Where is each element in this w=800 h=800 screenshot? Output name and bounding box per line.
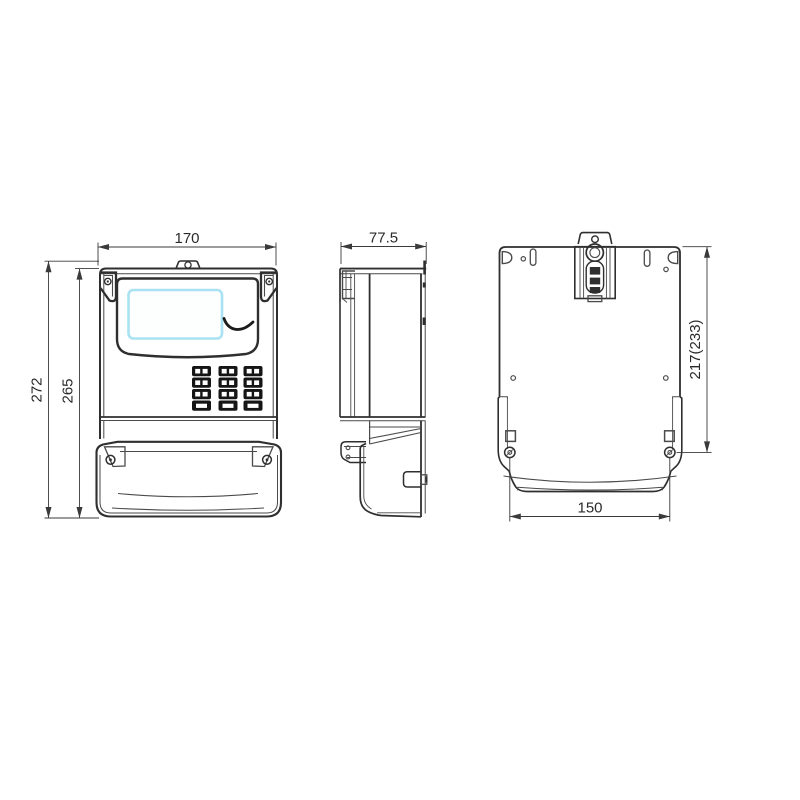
- side-view: [340, 261, 427, 518]
- small-hole: [664, 267, 668, 271]
- front-corner-screw-left: [101, 273, 117, 302]
- lcd-screen: [129, 290, 223, 339]
- dimension-label-side-depth: 77.5: [369, 230, 398, 247]
- back-cover-hooks: [498, 397, 682, 492]
- back-view: [498, 233, 682, 492]
- keypad-button: [219, 378, 238, 388]
- front-terminal-cover: [97, 442, 282, 517]
- small-hole: [664, 376, 669, 381]
- drawing-canvas: 170 272 265: [0, 0, 800, 800]
- back-hanger-bracket: [575, 233, 615, 302]
- slot-hole-left: [530, 249, 536, 265]
- dim-front-width: 170: [98, 230, 276, 266]
- dimension-label-mounting-height: 217(233): [687, 319, 704, 379]
- keypad-button: [219, 366, 238, 376]
- keypad: [192, 366, 263, 411]
- dimension-label-overall-height: 272: [29, 377, 46, 402]
- keypad-button: [192, 366, 211, 376]
- keypad-button: [192, 389, 211, 399]
- technical-drawing: 170 272 265: [0, 0, 800, 800]
- small-hole: [521, 257, 525, 261]
- keypad-button: [219, 389, 238, 399]
- side-seal-tab-top: [423, 261, 426, 275]
- front-view: [97, 261, 282, 517]
- back-screw-right: [665, 447, 675, 457]
- dimension-label-terminal-cover-width: 150: [577, 499, 602, 516]
- side-seal-notch: [404, 472, 428, 487]
- small-hole: [511, 376, 516, 381]
- front-corner-screw-right: [261, 273, 277, 302]
- keypad-button: [244, 366, 263, 376]
- dimension-label-front-width: 170: [174, 230, 199, 247]
- keypad-button: [244, 378, 263, 388]
- lcd-swoosh-mark: [224, 319, 253, 330]
- dimension-label-body-height: 265: [60, 378, 77, 403]
- keypad-button: [244, 389, 263, 399]
- back-panel-outline: [500, 247, 681, 397]
- side-seal-tab: [423, 283, 426, 288]
- side-seal-tab: [423, 318, 426, 326]
- dim-body-height: 265: [60, 269, 100, 518]
- corner-notch-right: [668, 252, 678, 264]
- keypad-button: [192, 378, 211, 388]
- side-terminal-cover: [360, 444, 421, 517]
- front-hanger-tab: [176, 261, 200, 269]
- dim-side-depth: 77.5: [341, 230, 426, 265]
- hanger-hole: [185, 262, 191, 268]
- corner-notch-left: [502, 252, 512, 264]
- dim-terminal-cover-width: 150: [510, 458, 670, 522]
- side-top-bracket: [343, 271, 356, 303]
- back-screw-left: [505, 447, 515, 457]
- slot-hole-right: [644, 250, 650, 266]
